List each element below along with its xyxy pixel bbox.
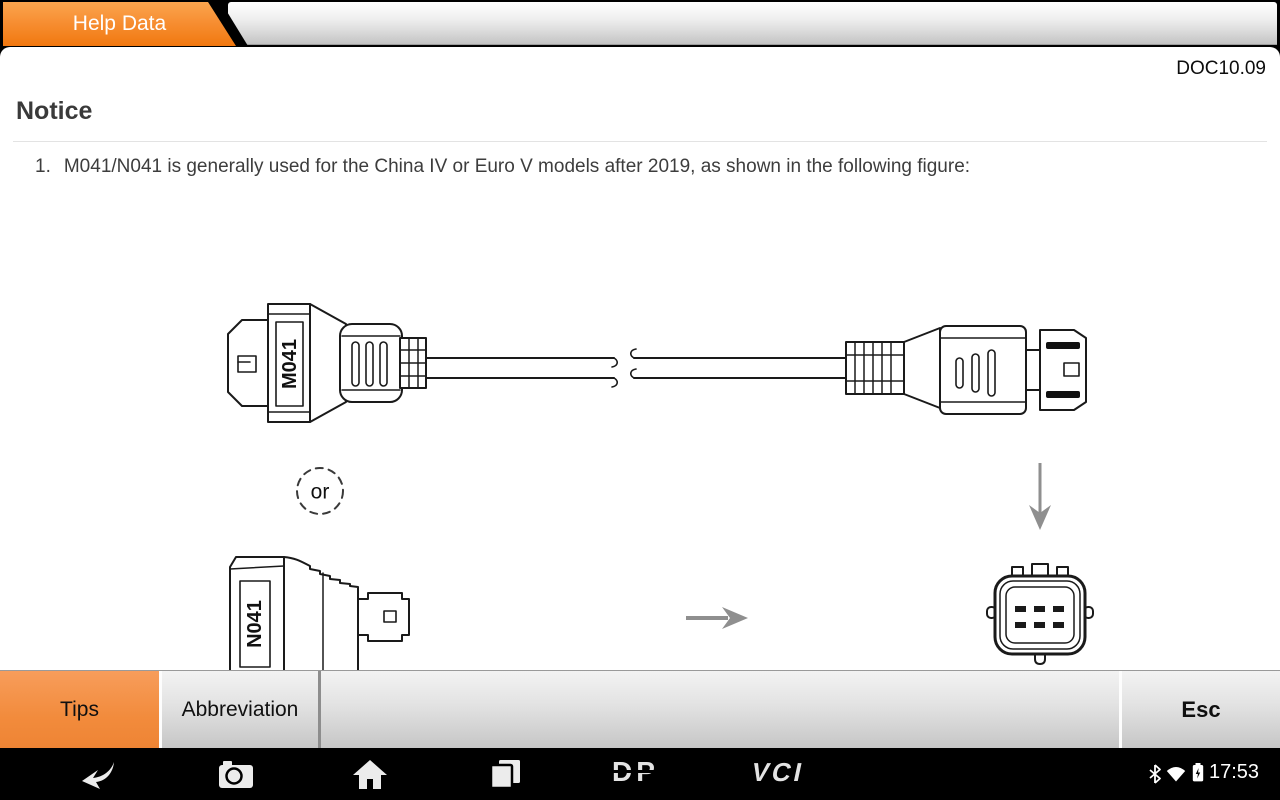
bottom-bar: Tips Abbreviation Esc bbox=[0, 670, 1280, 748]
dp-logo[interactable]: DP bbox=[612, 758, 659, 786]
n041-adapter: N041 bbox=[230, 557, 409, 670]
socket-connector bbox=[987, 564, 1093, 664]
battery-charging-icon bbox=[1192, 763, 1204, 782]
notice-item-text: M041/N041 is generally used for the Chin… bbox=[64, 156, 970, 178]
tips-button[interactable]: Tips bbox=[0, 671, 159, 749]
cable-diagram: M041 bbox=[0, 297, 1280, 670]
cable bbox=[432, 349, 840, 387]
or-badge: or bbox=[297, 468, 343, 514]
esc-button[interactable]: Esc bbox=[1122, 671, 1280, 749]
down-arrow-icon bbox=[1029, 463, 1051, 530]
header-gray-strip bbox=[228, 2, 1277, 45]
page-title: Notice bbox=[16, 97, 92, 126]
recents-icon[interactable] bbox=[490, 760, 522, 789]
right-arrow-icon bbox=[686, 607, 748, 629]
m041-label: M041 bbox=[279, 339, 301, 389]
vci-logo[interactable]: VCI bbox=[749, 759, 807, 785]
title-divider bbox=[13, 141, 1267, 142]
or-label: or bbox=[311, 481, 330, 504]
abbreviation-button[interactable]: Abbreviation bbox=[162, 671, 318, 749]
content-area: DOC10.09 Notice 1. M041/N041 is generall… bbox=[0, 47, 1280, 670]
m041-connector: M041 bbox=[228, 304, 432, 422]
notice-item-number: 1. bbox=[35, 156, 51, 178]
camera-icon[interactable] bbox=[218, 761, 254, 788]
divider-dark bbox=[318, 671, 321, 749]
clock: 17:53 bbox=[1209, 761, 1259, 784]
abbreviation-button-label: Abbreviation bbox=[182, 698, 299, 722]
n041-label: N041 bbox=[244, 600, 266, 648]
android-nav-bar: DP VCI 17:53 bbox=[0, 748, 1280, 800]
right-plug-connector bbox=[838, 326, 1086, 414]
notice-item-1: 1. M041/N041 is generally used for the C… bbox=[35, 156, 1260, 178]
bluetooth-icon bbox=[1148, 764, 1162, 784]
wifi-icon bbox=[1166, 766, 1186, 782]
doc-code: DOC10.09 bbox=[1176, 58, 1266, 80]
tips-button-label: Tips bbox=[60, 698, 99, 722]
top-header-bar: Help Data bbox=[0, 0, 1280, 47]
esc-button-label: Esc bbox=[1181, 697, 1220, 723]
help-data-tab[interactable]: Help Data bbox=[3, 2, 236, 46]
help-data-tab-label: Help Data bbox=[73, 12, 166, 36]
home-icon[interactable] bbox=[353, 760, 387, 789]
back-icon[interactable] bbox=[80, 760, 116, 790]
screen: Help Data DOC10.09 Notice 1. M041/N041 i… bbox=[0, 0, 1280, 800]
